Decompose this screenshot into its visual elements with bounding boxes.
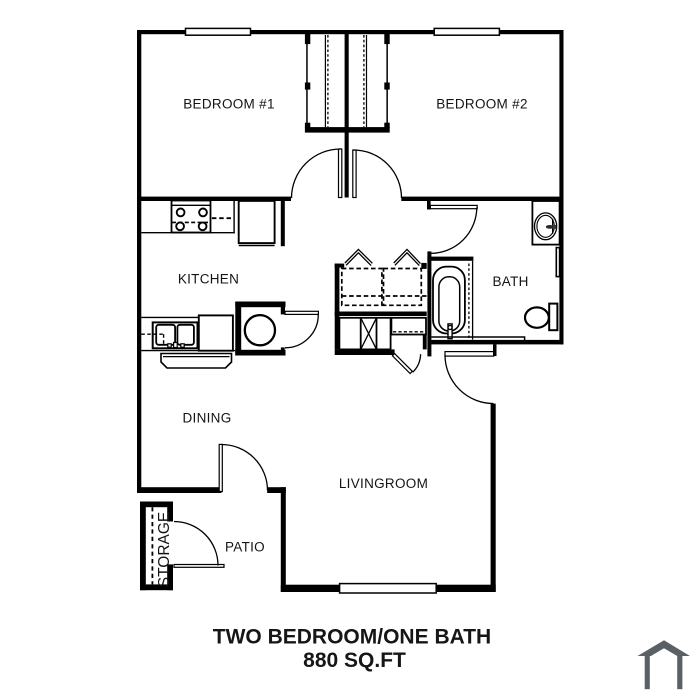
svg-text:PATIO: PATIO — [225, 539, 265, 554]
svg-text:KITCHEN: KITCHEN — [178, 272, 239, 287]
svg-text:BATH: BATH — [492, 274, 528, 289]
svg-text:TWO BEDROOM/ONE BATH: TWO BEDROOM/ONE BATH — [213, 626, 491, 649]
svg-text:LIVINGROOM: LIVINGROOM — [339, 476, 428, 491]
svg-text:BEDROOM #1: BEDROOM #1 — [183, 96, 275, 111]
svg-text:BEDROOM #2: BEDROOM #2 — [436, 96, 528, 111]
svg-text:STORAGE: STORAGE — [156, 512, 173, 588]
svg-text:880 SQ.FT: 880 SQ.FT — [303, 649, 406, 672]
svg-text:DINING: DINING — [182, 411, 231, 426]
